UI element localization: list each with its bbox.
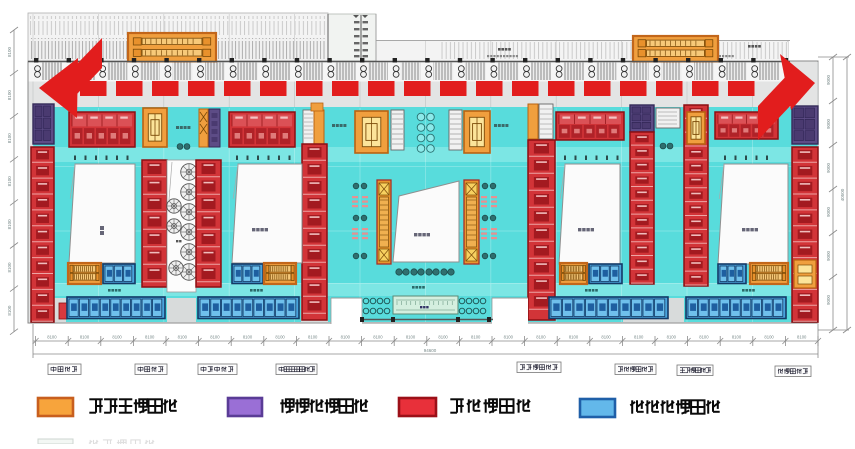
svg-text:40500: 40500: [840, 188, 845, 201]
svg-text:8100: 8100: [373, 335, 383, 340]
svg-text:8100: 8100: [308, 335, 318, 340]
svg-text:9000: 9000: [826, 118, 831, 129]
svg-text:8100: 8100: [601, 335, 611, 340]
svg-text:8100: 8100: [667, 335, 677, 340]
svg-text:8100: 8100: [438, 335, 448, 340]
svg-text:9000: 9000: [826, 206, 831, 217]
svg-text:8100: 8100: [341, 335, 351, 340]
svg-text:94600: 94600: [424, 348, 437, 353]
svg-text:8100: 8100: [569, 335, 579, 340]
svg-text:8100: 8100: [634, 335, 644, 340]
svg-text:8100: 8100: [47, 335, 57, 340]
svg-text:8100: 8100: [7, 305, 12, 316]
svg-text:8100: 8100: [7, 90, 12, 101]
svg-text:8100: 8100: [732, 335, 742, 340]
svg-text:8100: 8100: [406, 335, 416, 340]
svg-text:8100: 8100: [7, 133, 12, 144]
svg-text:8100: 8100: [178, 335, 188, 340]
svg-text:8100: 8100: [210, 335, 220, 340]
svg-text:9000: 9000: [826, 250, 831, 261]
svg-text:8100: 8100: [536, 335, 546, 340]
svg-text:8100: 8100: [504, 335, 514, 340]
svg-text:8100: 8100: [243, 335, 253, 340]
svg-text:8100: 8100: [275, 335, 285, 340]
svg-text:9000: 9000: [826, 294, 831, 305]
svg-text:8100: 8100: [764, 335, 774, 340]
svg-text:8100: 8100: [80, 335, 90, 340]
svg-text:8100: 8100: [797, 335, 807, 340]
svg-text:8100: 8100: [7, 219, 12, 230]
svg-text:8100: 8100: [471, 335, 481, 340]
svg-text:9000: 9000: [826, 74, 831, 85]
svg-text:8100: 8100: [699, 335, 709, 340]
svg-text:8100: 8100: [7, 176, 12, 187]
svg-text:8100: 8100: [7, 262, 12, 273]
svg-text:8100: 8100: [145, 335, 155, 340]
svg-text:8100: 8100: [7, 46, 12, 57]
svg-text:9000: 9000: [826, 162, 831, 173]
svg-text:8100: 8100: [112, 335, 122, 340]
